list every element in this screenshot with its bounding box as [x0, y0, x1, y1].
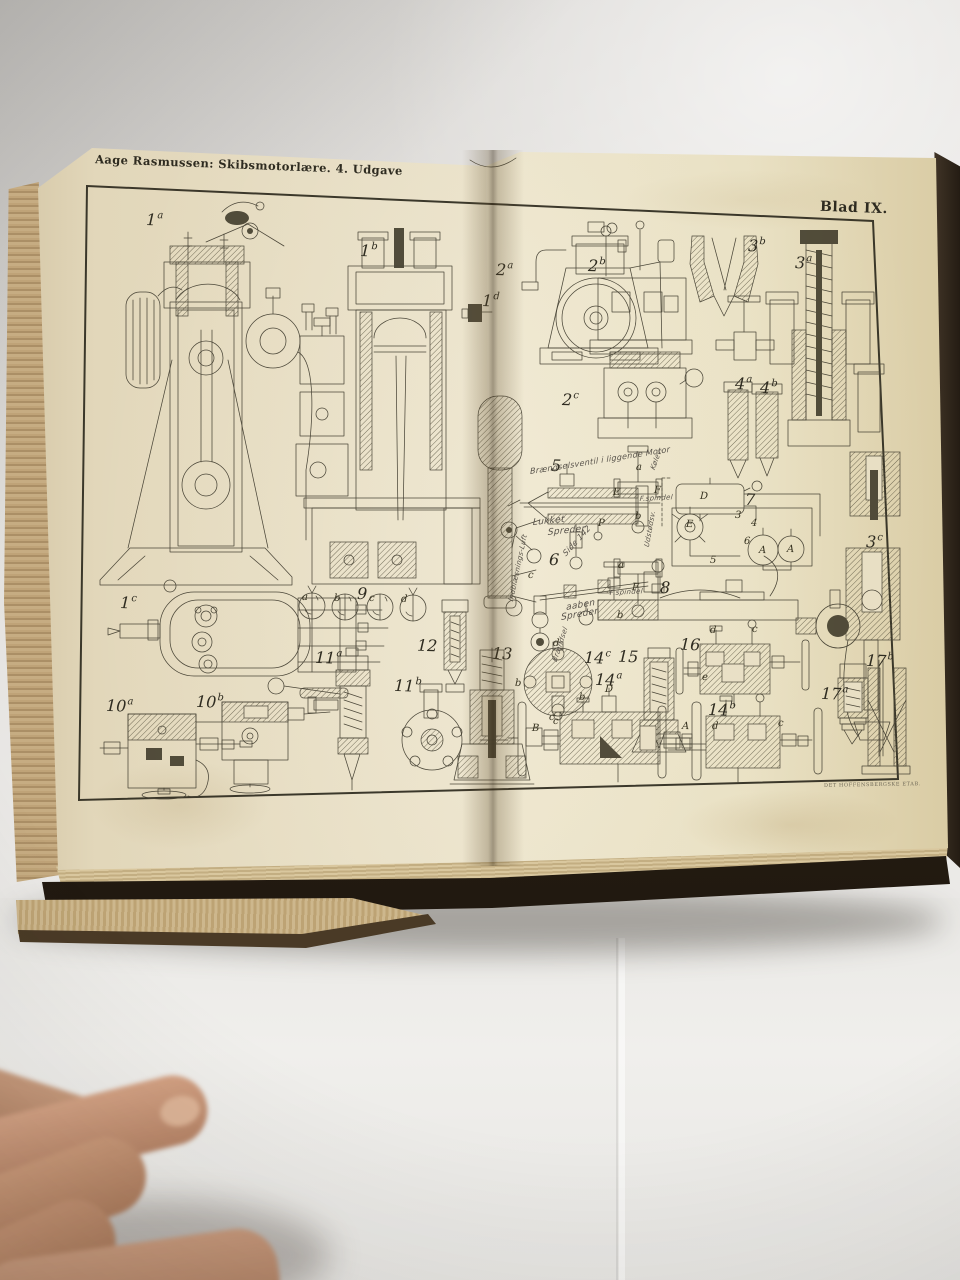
photo-of-open-book: Aage Rasmussen: Skibsmotorlære. 4. Udgav… — [0, 0, 960, 1280]
hand — [0, 0, 960, 1280]
